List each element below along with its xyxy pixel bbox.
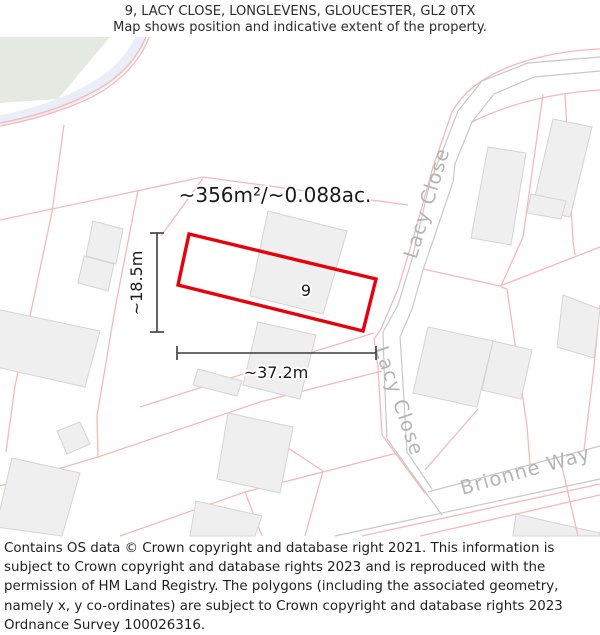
map-subtitle: Map shows position and indicative extent… (0, 20, 600, 36)
building (513, 514, 600, 536)
building (557, 295, 600, 358)
building (217, 413, 293, 493)
copyright-text: Contains OS data © Crown copyright and d… (4, 541, 563, 633)
parcel-boundary-line (500, 247, 600, 286)
building (0, 309, 100, 387)
plot-number-label: 9 (301, 281, 311, 300)
property-address: 9, LACY CLOSE, LONGLEVENS, GLOUCESTER, G… (0, 4, 600, 20)
parcel-boundary-line (305, 471, 323, 536)
parcel-boundary-line (423, 269, 500, 286)
height-dimension: ~18.5m (127, 233, 164, 332)
parcel-boundary-line (425, 409, 478, 470)
map-title: 9, LACY CLOSE, LONGLEVENS, GLOUCESTER, G… (0, 0, 600, 37)
property-map: Lacy Close Lacy Close Brionne Way 9 ~18.… (0, 37, 600, 537)
building (193, 369, 242, 396)
width-dimension-label: ~37.2m (244, 363, 309, 382)
copyright-notice: Contains OS data © Crown copyright and d… (0, 537, 600, 625)
parcel-boundary-line (6, 125, 64, 452)
area-label: ~356m²/~0.088ac. (179, 183, 372, 207)
building (57, 422, 90, 454)
building (413, 327, 493, 407)
building (471, 147, 526, 245)
parcel-boundary-line (0, 177, 203, 220)
building (243, 322, 316, 399)
building (250, 211, 347, 314)
height-dimension-label: ~18.5m (127, 251, 146, 316)
map-canvas: Lacy Close Lacy Close Brionne Way 9 ~18.… (0, 37, 600, 537)
building (0, 458, 80, 536)
